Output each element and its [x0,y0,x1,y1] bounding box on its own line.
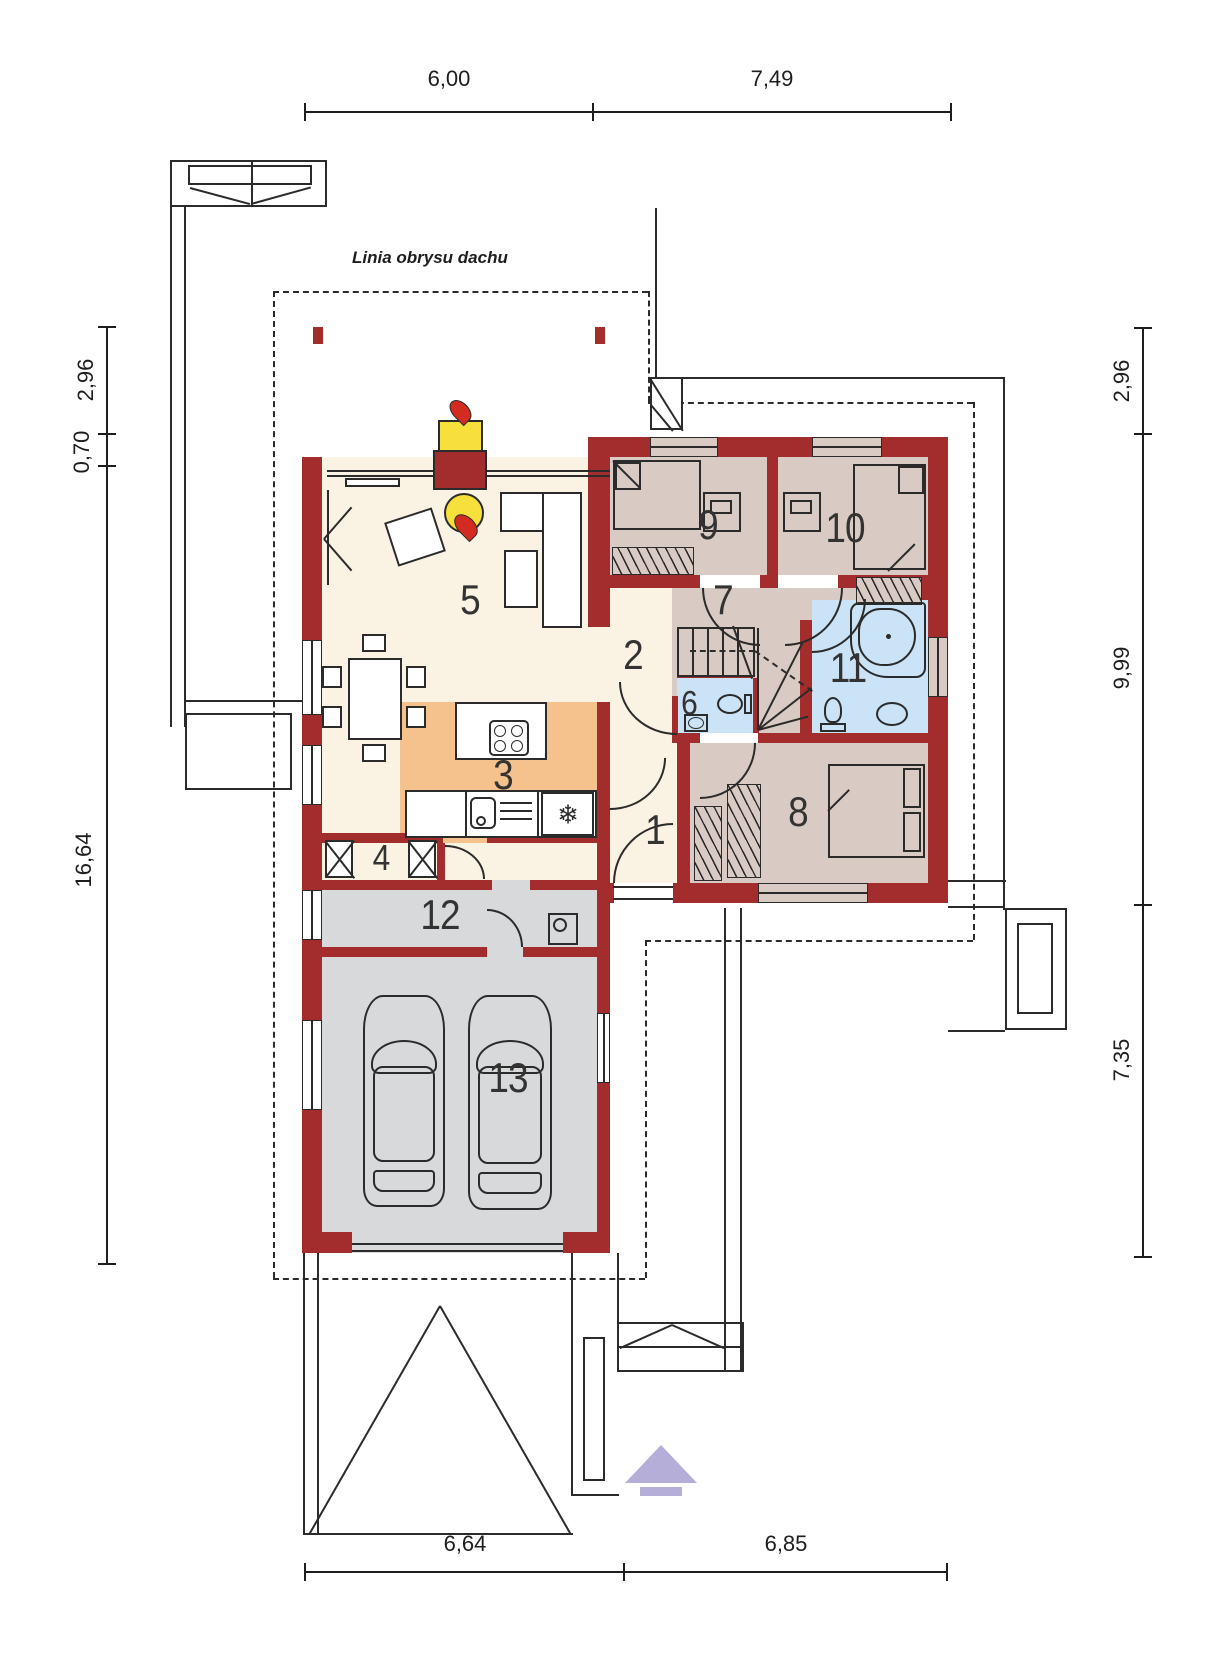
dim-tick [1134,433,1152,435]
dim-left-2: 0,70 [69,431,95,474]
cooktop-burner [511,725,523,737]
glass-wall-living [327,470,433,477]
cooktop-burner [494,725,506,737]
driveway-edge [317,1253,319,1535]
bed-pillow [903,768,921,808]
dining-chair [362,744,386,762]
wall-top [588,437,948,457]
bath-toilet-bowl [824,697,842,723]
wall-room8-left [677,743,690,883]
driveway-edge [303,1533,573,1535]
garage-door-line [352,1243,563,1245]
wall-utility-top [322,880,492,890]
pergola-post-line [251,160,253,205]
wall-bottom [673,883,758,903]
wc-toilet-tank [744,694,752,714]
wall-corridor-top [760,575,778,588]
sink-drainer-line [500,818,532,820]
roof-outline-dashed [273,1278,645,1280]
dim-tick [1134,1256,1152,1258]
chimney-yellow [438,420,483,452]
glass-wall-living [487,470,610,477]
eave-outline [655,377,1005,379]
sink-drain [476,816,486,826]
driveway-gable-line [439,1306,571,1534]
driveway-edge [303,1253,305,1535]
roof-outline-dashed [645,940,647,1278]
porch-post [313,327,323,344]
dim-right-1: 2,96 [1109,360,1135,403]
room-label-12: 12 [420,891,459,939]
right-terrace-step-inner [1017,923,1053,1014]
dining-chair [322,706,342,728]
dim-left-1: 2,96 [73,359,99,402]
dim-tick [592,103,594,121]
roof-outline-dashed [973,402,975,940]
wall-bottom [868,883,948,903]
room-label-5: 5 [460,576,480,624]
roof-outline-dashed [648,402,973,404]
sideboard [345,478,400,487]
dim-bottom-2: 6,85 [765,1531,808,1557]
dim-tick [623,1563,625,1581]
room-label-8: 8 [788,788,808,836]
wall-garage-bottom [563,1232,610,1253]
dim-top-1: 6,00 [428,66,471,92]
window-bath [928,637,948,697]
wardrobe-room8 [694,806,722,881]
dim-tick [304,103,306,121]
sink-drainer-line [500,810,532,812]
car-roof [373,1066,435,1162]
wall-room9-left [588,457,610,627]
room-label-2: 2 [623,631,643,679]
dim-left-3: 16,64 [71,832,97,887]
wall-left [302,715,322,745]
wall-left-garage [302,1110,322,1253]
dim-tick [1134,904,1152,906]
window-living-left [302,640,322,715]
wardrobe-room9 [612,547,694,575]
stair-riser [707,627,709,677]
fridge-snowflake-icon: ❄ [557,800,579,831]
roof-outline-dashed [645,940,973,942]
window-room9 [650,437,718,457]
wall-left [302,805,322,890]
wall-room4-right [437,843,445,880]
wall-garage-right [597,843,610,1013]
counter-divider [465,790,467,838]
dim-tick [950,103,952,121]
wardrobe-room8 [727,784,761,878]
window-room10 [812,437,882,457]
porch-edge-line [740,908,742,1371]
driveway-gable-line [309,1306,441,1534]
dim-tick [946,1563,948,1581]
terrace-edge-line [184,207,186,727]
sofa-chaise [542,492,582,628]
desk-monitor [790,500,812,514]
stair-walk-line [690,650,755,652]
garage-door-line [352,1250,563,1252]
room-label-9: 9 [698,501,718,549]
wall-right [928,457,948,637]
pergola-inner [188,165,312,185]
terrace-table [185,713,292,790]
stair-riser [722,627,724,677]
dining-table [348,658,402,740]
entry-canopy-line [618,1370,744,1372]
car-rear [478,1172,542,1194]
room-label-3: 3 [493,751,513,799]
window-garage-right [597,1013,610,1083]
wall-kitchen-right [597,702,610,843]
dim-line-bottom [305,1571,948,1573]
chimney-red [433,450,487,490]
dim-tick [304,1563,306,1581]
bed-pillow [898,466,924,494]
dining-chair [322,666,342,688]
window-room8 [758,883,868,903]
dining-chair [406,666,426,688]
wall-corridor-bottom [758,733,928,743]
bath-sink [876,702,908,726]
eave-outline [1003,377,1005,882]
dim-top-2: 7,49 [751,66,794,92]
bathtub-drain [886,634,891,639]
window-utility-left [302,890,322,940]
dim-tick [98,1263,116,1265]
wall-left [302,457,322,640]
dim-tick [98,433,116,435]
porch-edge-line [724,908,726,1371]
dim-tick [98,465,116,467]
entry-step-planter [583,1337,605,1481]
entrance-arrow [625,1445,697,1483]
eave-outline [655,208,657,377]
room-label-1: 1 [645,806,665,854]
window-dining-left [302,745,322,805]
dim-tick [1134,327,1152,329]
entrance-threshold [613,898,673,900]
window-garage-left [302,1020,322,1110]
room-label-6: 6 [681,685,697,724]
porch-strip-line [617,1253,619,1372]
utility-boiler-dial [553,918,567,932]
porch-strip-line [571,1494,619,1496]
entrance-threshold [613,886,673,888]
wall-garage-top [322,947,487,957]
room-label-11: 11 [830,644,867,692]
wall-garage-right [597,1083,610,1253]
floor-plan: 6,00 7,49 6,64 6,85 2,96 0,70 16,64 2,96… [0,0,1232,1655]
wall-corridor-top [610,575,700,588]
dim-line-top [305,111,952,113]
entry-canopy-line [618,1322,742,1324]
entry-canopy-line [742,1322,744,1372]
counter-divider [537,790,539,838]
room-label-13: 13 [488,1054,527,1102]
terrace-edge-line [170,207,172,727]
dim-line-right [1142,328,1144,1258]
right-terrace-line [948,1030,1005,1032]
room-label-7: 7 [713,576,733,624]
sink-drainer-line [500,802,532,804]
bed-pillow [903,812,921,852]
dim-right-2: 9,99 [1109,647,1135,690]
dim-tick [98,326,116,328]
room-label-10: 10 [825,504,864,552]
roof-outline-label: Linia obrysu dachu [352,248,508,268]
porch-post [595,327,605,344]
roof-outline-dashed [273,291,648,293]
car-rear [373,1170,435,1192]
porch-strip-line [571,1253,573,1496]
right-terrace-line [948,906,1005,908]
wc-toilet-bowl [717,694,743,714]
bath-toilet-tank [820,723,846,732]
wall-room9-10-divider [767,457,778,575]
room-label-4: 4 [373,837,390,879]
dim-right-3: 7,35 [1109,1039,1135,1082]
wall-garage-bottom [322,1232,352,1253]
stair-riser [692,627,694,677]
coffee-table [504,550,538,608]
wall-right [928,697,948,903]
dining-chair [406,706,426,728]
entrance-arrow-base [640,1487,682,1496]
dim-line-left [106,327,108,1265]
dining-chair [362,634,386,652]
wall-utility-top [530,880,597,890]
wall-left-garage [302,940,322,1020]
terrace-door-frame [327,490,329,585]
